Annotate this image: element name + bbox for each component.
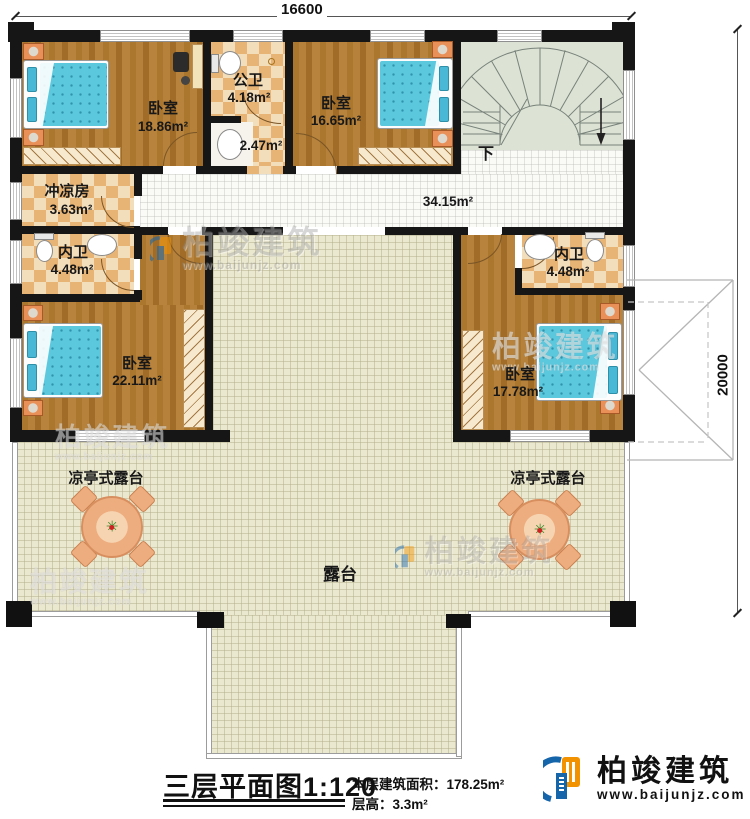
label-bedroom-tr-area: 16.65m²	[311, 114, 361, 129]
wall-int	[203, 42, 211, 166]
wall-int	[205, 227, 213, 430]
wall-int	[453, 30, 461, 174]
toilet-icon	[36, 240, 53, 262]
label-bedroom-bl-area: 22.11m²	[112, 374, 162, 389]
toilet-icon	[211, 54, 219, 73]
wardrobe	[462, 330, 484, 430]
dimension-tick	[627, 11, 636, 20]
wardrobe	[183, 309, 205, 428]
label-bath-left-name: 内卫	[58, 245, 88, 262]
area-value: 178.25m²	[447, 777, 505, 792]
terrace-post	[610, 601, 636, 627]
terrace-lower-floor	[210, 615, 460, 757]
bed	[23, 323, 103, 398]
terrace-post	[197, 612, 224, 628]
wall-int	[453, 227, 461, 430]
label-terrace-main: 露台	[323, 566, 357, 585]
wardrobe	[358, 147, 452, 165]
label-bedroom-br-area: 17.78m²	[493, 385, 543, 400]
floor-plan: ✳ ✳ 16600 20000	[0, 0, 750, 819]
desk-lamp-icon	[181, 76, 190, 85]
label-washroom-area: 2.47m²	[240, 139, 283, 154]
nightstand	[432, 41, 453, 58]
label-public-bath-name: 公卫	[233, 73, 263, 90]
window	[497, 30, 542, 42]
brand-name: 柏竣建筑	[597, 757, 746, 787]
wall-int	[202, 227, 283, 235]
wall-int	[22, 294, 140, 302]
window	[75, 430, 145, 442]
plant-icon: ✳	[106, 520, 119, 535]
terrace-center-floor	[213, 235, 453, 442]
hook-icon	[268, 58, 275, 65]
label-bedroom-bl-name: 卧室	[122, 356, 152, 373]
nightstand	[23, 400, 43, 416]
sink-icon	[87, 234, 117, 256]
label-hall-area: 34.15m²	[423, 195, 473, 210]
wall-int	[22, 166, 163, 174]
footer-area-line: 本层建筑面积：178.25m²	[352, 773, 504, 793]
terrace-post	[6, 601, 32, 627]
toilet-icon	[585, 232, 605, 239]
bed	[23, 60, 109, 129]
label-stairs-down: 下	[478, 146, 494, 164]
floor-height-label: 层高：	[352, 797, 393, 812]
window	[370, 30, 425, 42]
label-shower-area: 3.63m²	[50, 203, 93, 218]
label-bath-left-area: 4.48m²	[51, 263, 94, 278]
wall-int	[203, 116, 241, 123]
label-bedroom-tr-name: 卧室	[321, 96, 351, 113]
title-underline	[163, 805, 345, 807]
label-bath-right-area: 4.48m²	[547, 265, 590, 280]
brand-logo-icon	[543, 753, 589, 805]
terrace-lower-rail-right	[456, 617, 462, 757]
label-bedroom-br-name: 卧室	[505, 367, 535, 384]
stairs-drawing	[461, 42, 623, 150]
window	[233, 30, 283, 42]
window	[10, 78, 22, 138]
window	[10, 182, 22, 220]
window	[623, 70, 635, 140]
stairwell	[461, 42, 623, 150]
nightstand	[23, 129, 44, 146]
nightstand	[432, 130, 453, 147]
dimension-tick	[733, 608, 742, 617]
hall-floor	[140, 174, 623, 227]
label-shower-name: 冲凉房	[44, 184, 89, 201]
desk	[192, 44, 203, 89]
label-terrace-right: 凉亭式露台	[510, 471, 585, 488]
dimension-line-right	[737, 30, 738, 614]
label-bedroom-tl-name: 卧室	[148, 101, 178, 118]
window	[510, 430, 590, 442]
terrace-rail-bottom-right	[468, 611, 614, 617]
nightstand	[23, 43, 44, 60]
window	[10, 240, 22, 284]
bed	[377, 58, 453, 129]
nightstand	[23, 305, 43, 321]
brand-logo: 柏竣建筑 www.baijunjz.com	[543, 753, 746, 805]
dimension-right-label: 20000	[715, 350, 732, 400]
title-underline	[163, 799, 345, 802]
terrace-lower-rail-bottom	[206, 753, 462, 759]
window	[10, 338, 22, 408]
dimension-top-label: 16600	[277, 1, 327, 18]
nightstand	[600, 303, 620, 320]
brand-url: www.baijunjz.com	[597, 787, 746, 802]
terrace-rail-left	[12, 442, 18, 614]
sink-icon	[524, 234, 556, 260]
wall-int	[515, 227, 623, 235]
footer-height-line: 层高：3.3m²	[352, 793, 428, 813]
label-public-bath-area: 4.18m²	[228, 91, 271, 106]
plant-icon: ✳	[534, 523, 547, 538]
terrace-post	[446, 614, 471, 628]
label-bedroom-tl-area: 18.86m²	[138, 120, 188, 135]
wall-int	[140, 227, 168, 235]
floor-height-value: 3.3m²	[393, 797, 428, 812]
toilet-icon	[34, 233, 54, 240]
wall-int	[203, 166, 247, 174]
area-label: 本层建筑面积：	[352, 777, 447, 792]
wall-int	[385, 227, 461, 235]
wall-int	[285, 42, 293, 166]
label-terrace-left: 凉亭式露台	[68, 471, 143, 488]
wall-int	[134, 174, 142, 196]
desk-chair	[173, 52, 189, 72]
bed	[536, 323, 622, 401]
wall-int	[134, 234, 142, 259]
wall-int	[283, 166, 296, 174]
wall-int	[515, 288, 623, 295]
label-bath-right-name: 内卫	[554, 247, 584, 264]
wall-int	[337, 166, 461, 174]
plan-title: 三层平面图	[163, 772, 303, 802]
terrace-rail-bottom-left	[18, 611, 200, 617]
terrace-lower-rail-left	[206, 617, 212, 757]
window	[100, 30, 190, 42]
toilet-icon	[586, 239, 604, 262]
wardrobe	[23, 147, 121, 165]
